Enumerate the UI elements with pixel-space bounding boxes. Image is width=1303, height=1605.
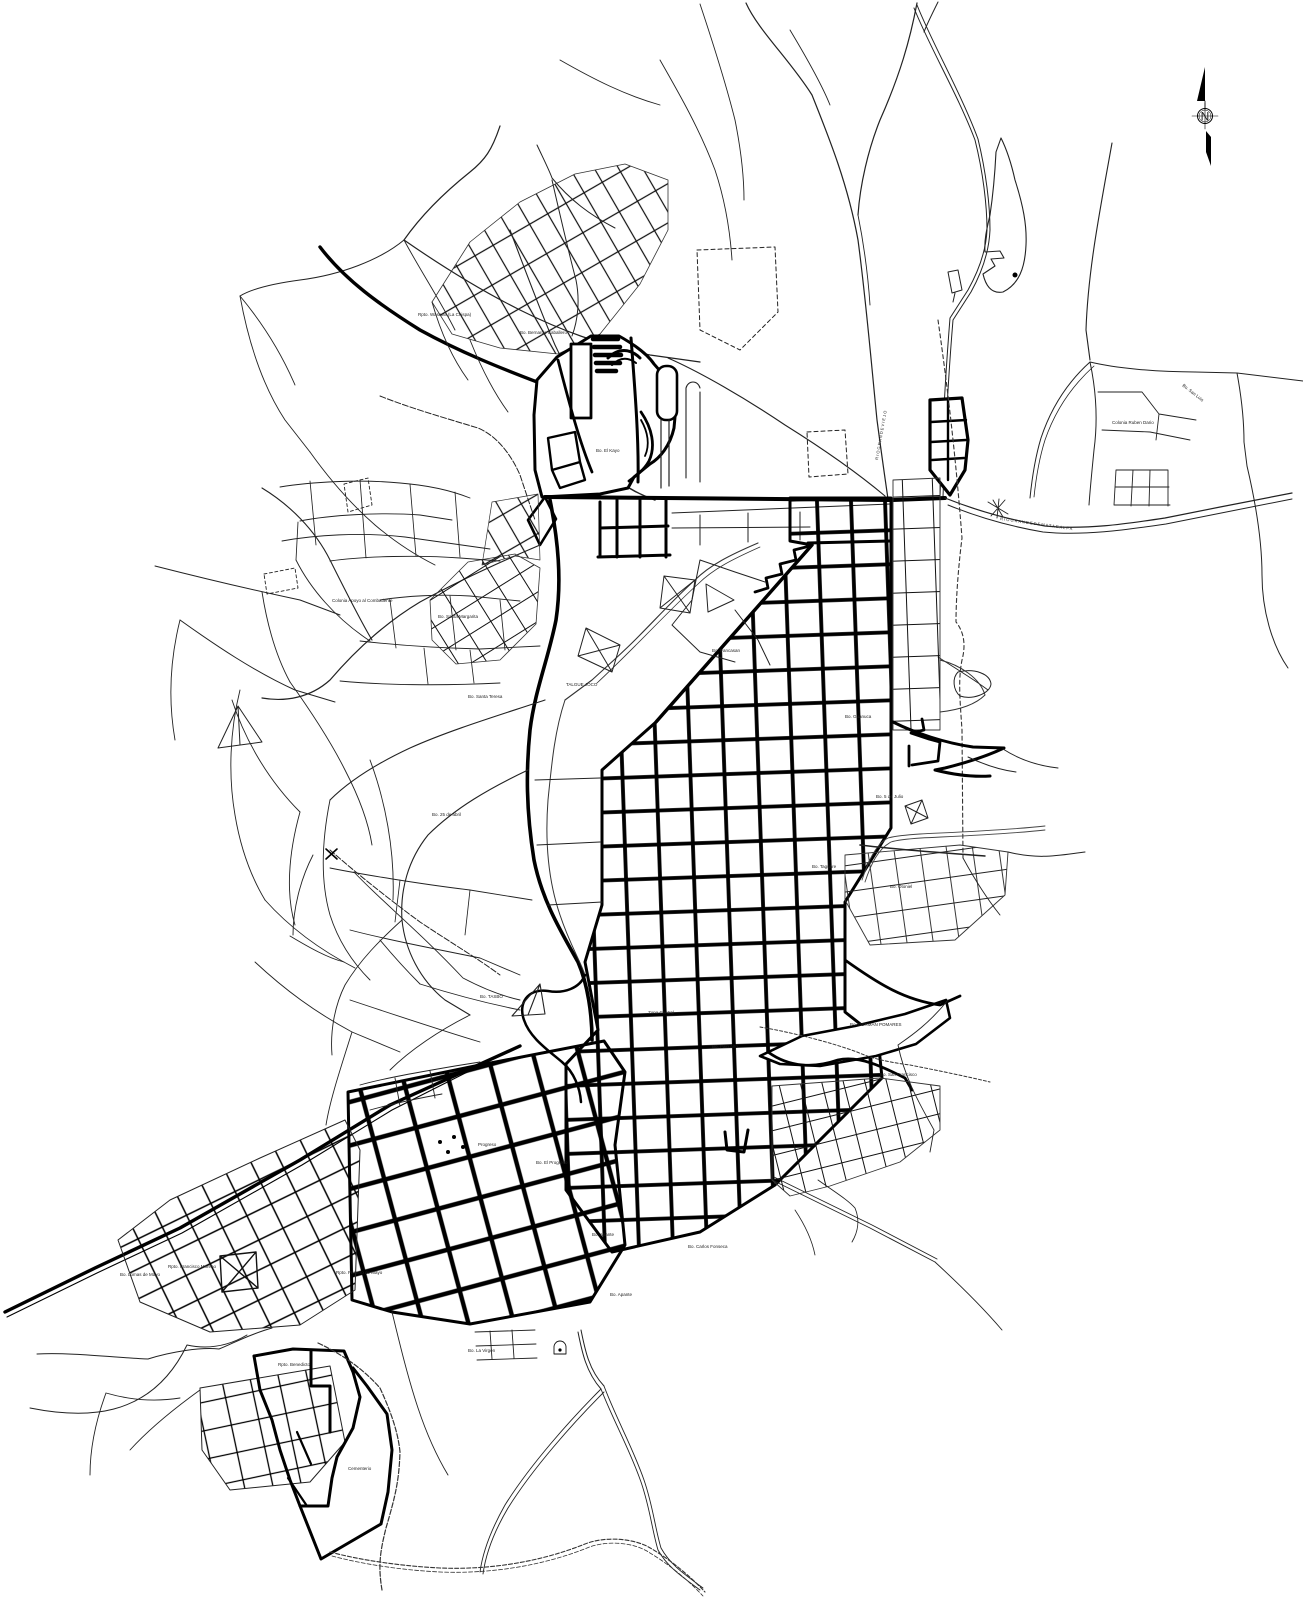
svg-text:Bo. Taguare: Bo. Taguare (812, 864, 837, 869)
svg-text:Bo. El Kayo: Bo. El Kayo (596, 448, 620, 453)
svg-text:Bo. 5 de Julio: Bo. 5 de Julio (876, 794, 904, 799)
svg-text:Bo. Santa Margarita: Bo. Santa Margarita (438, 614, 479, 619)
svg-text:N: N (1201, 110, 1210, 124)
svg-text:Colonia Ruben Dario: Colonia Ruben Dario (1112, 420, 1154, 425)
svg-text:Rpto. Primero de Mayo: Rpto. Primero de Mayo (336, 1270, 383, 1275)
svg-text:Bo. La Virgen: Bo. La Virgen (468, 1348, 496, 1353)
svg-text:Bo. 25 de abril: Bo. 25 de abril (432, 812, 461, 817)
svg-text:Bo. Carlos Fonseca: Bo. Carlos Fonseca (688, 1244, 728, 1249)
svg-text:Colonia Apoyo al Combatiente: Colonia Apoyo al Combatiente (332, 598, 393, 603)
svg-text:Bo. San Francisco: Bo. San Francisco (880, 1072, 917, 1077)
svg-text:Bo. Pancasan: Bo. Pancasan (712, 648, 741, 653)
svg-text:Progreso: Progreso (478, 1142, 497, 1147)
svg-text:Bo. Palo Alto: Bo. Palo Alto (712, 1044, 738, 1049)
svg-text:Bo. GERMAN POMARES: Bo. GERMAN POMARES (850, 1022, 902, 1027)
svg-text:Bo. Santa Teresa: Bo. Santa Teresa (468, 694, 503, 699)
svg-text:Bo. El Progreso: Bo. El Progreso (536, 1160, 568, 1165)
svg-text:Bo. Lomas de Mayo: Bo. Lomas de Mayo (120, 1272, 161, 1277)
svg-text:Cementerio: Cementerio (348, 1466, 372, 1471)
svg-text:Bo. Bernardo Caballero: Bo. Bernardo Caballero (520, 330, 568, 335)
svg-text:Rpto. Francisco Moreno: Rpto. Francisco Moreno (168, 1264, 217, 1269)
svg-text:Bo. Apante: Bo. Apante (610, 1292, 633, 1297)
svg-text:TALGUE JOCO: TALGUE JOCO (566, 682, 598, 687)
svg-text:Bo. Otoniel: Bo. Otoniel (890, 884, 912, 889)
svg-text:Rpto. Benedicto: Rpto. Benedicto (278, 1362, 311, 1367)
svg-text:Rpto. Waswali (La Chispa): Rpto. Waswali (La Chispa) (418, 312, 472, 317)
svg-text:Bo. TASBO: Bo. TASBO (480, 994, 503, 999)
svg-text:Bo. Apante: Bo. Apante (592, 1232, 615, 1237)
svg-text:Zona Central: Zona Central (648, 1010, 674, 1015)
svg-text:Bo. Guanuca: Bo. Guanuca (845, 714, 872, 719)
